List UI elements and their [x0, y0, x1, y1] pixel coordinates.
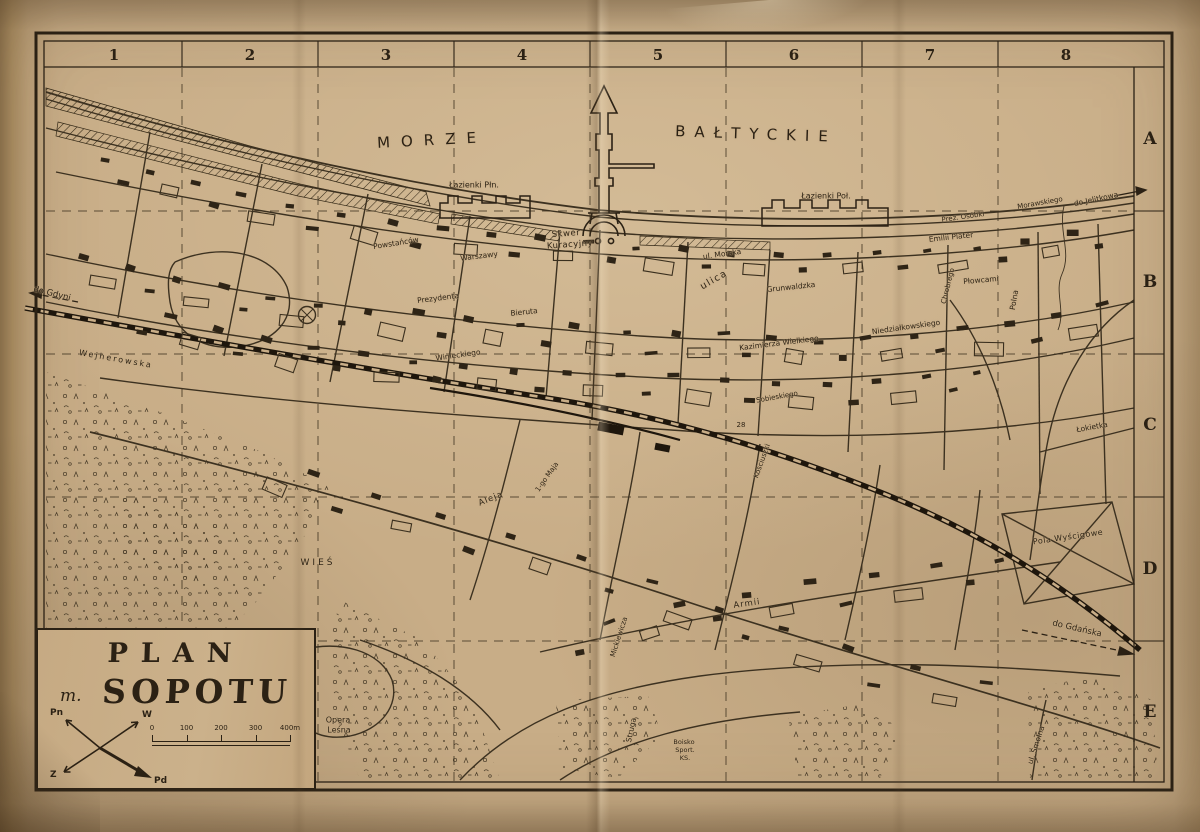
racecourse-field [1002, 502, 1134, 604]
map-title-line1: PLAN [37, 638, 314, 669]
map-title-prefix: m. [60, 686, 82, 706]
scale-tick-mark [152, 735, 153, 742]
scale-tick-mark [221, 735, 222, 742]
scale-tick-label: 0 [150, 724, 154, 732]
scale-bar: 0100200300400m [150, 724, 310, 750]
scale-tick-label: 400m [280, 724, 300, 732]
scale-tick-label: 300 [249, 724, 262, 732]
title-cartouche: PLAN m. SOPOTU Pn W Z Pd [36, 628, 316, 790]
compass-south-label: Pd [154, 776, 167, 786]
scale-tick-mark [290, 735, 291, 742]
scale-tick-label: 200 [214, 724, 227, 732]
compass-north-label: Pn [50, 708, 63, 718]
scale-tick-mark [256, 735, 257, 742]
scale-tick-mark [187, 735, 188, 742]
compass-west-label: Z [50, 770, 57, 780]
beach-strip [46, 88, 770, 250]
compass-east-label: W [142, 710, 152, 720]
scale-tick-label: 100 [180, 724, 193, 732]
scanned-map-paper: 12345678 ABCDE MORZE BAŁTYCKIE Łazienki … [0, 0, 1200, 832]
